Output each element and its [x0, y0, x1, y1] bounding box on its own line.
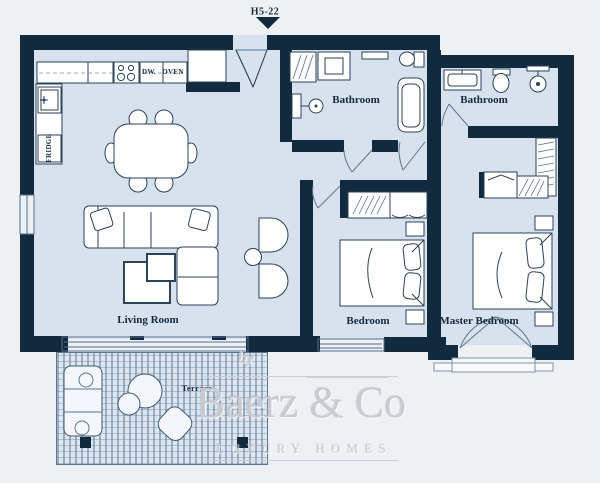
nightstand — [535, 312, 553, 326]
floor-plan-drawing — [0, 0, 600, 483]
coat-closet — [290, 52, 316, 82]
bathroom-2-fixtures — [444, 66, 549, 93]
washer-icon — [318, 52, 350, 80]
pillow-icon — [403, 243, 422, 271]
terrace-furniture — [64, 366, 248, 448]
side-table — [245, 249, 262, 266]
shelf — [362, 52, 388, 59]
entry-closet — [188, 50, 226, 82]
pillow-icon — [525, 237, 544, 269]
nightstand — [535, 216, 553, 230]
label-bedroom: Bedroom — [346, 315, 389, 327]
label-terrace: Terrace — [182, 383, 213, 393]
pillow-icon — [188, 208, 211, 231]
label-bathroom-2: Bathroom — [460, 94, 507, 106]
label-master-bedroom: Master Bedroom — [439, 315, 518, 327]
label-dishwasher: DW. — [142, 68, 156, 76]
bedroom-closet — [348, 192, 427, 218]
unit-label: H5-22 — [251, 7, 280, 18]
toilet-icon — [400, 52, 425, 67]
outdoor-sofa — [64, 366, 102, 436]
master-bed — [473, 216, 553, 326]
door-step — [434, 358, 553, 372]
nightstand — [406, 222, 424, 236]
bathtub-icon — [398, 78, 424, 132]
toilet-icon — [493, 69, 510, 93]
label-bathroom-1: Bathroom — [332, 94, 379, 106]
label-fridge: FRIDGE — [45, 133, 53, 162]
coffee-tables — [124, 254, 175, 303]
label-living-room: Living Room — [117, 314, 178, 326]
label-oven: OVEN — [162, 68, 183, 76]
outdoor-chair — [155, 403, 196, 444]
entrance-arrow-icon — [256, 17, 280, 29]
dining-table — [114, 124, 188, 178]
pillow-icon — [403, 272, 422, 300]
terrace-post — [237, 437, 248, 448]
terrace-post — [80, 437, 91, 448]
dresser — [484, 172, 517, 198]
stove-icon — [114, 62, 139, 83]
kitchen-sink-icon — [38, 87, 61, 113]
floor-plan-canvas: H5-22 DW. OVEN FRIDGE Bathroom Bathroom … — [0, 0, 600, 483]
plant-icon — [118, 393, 140, 415]
sink-icon — [444, 70, 481, 90]
nightstand — [406, 310, 424, 324]
